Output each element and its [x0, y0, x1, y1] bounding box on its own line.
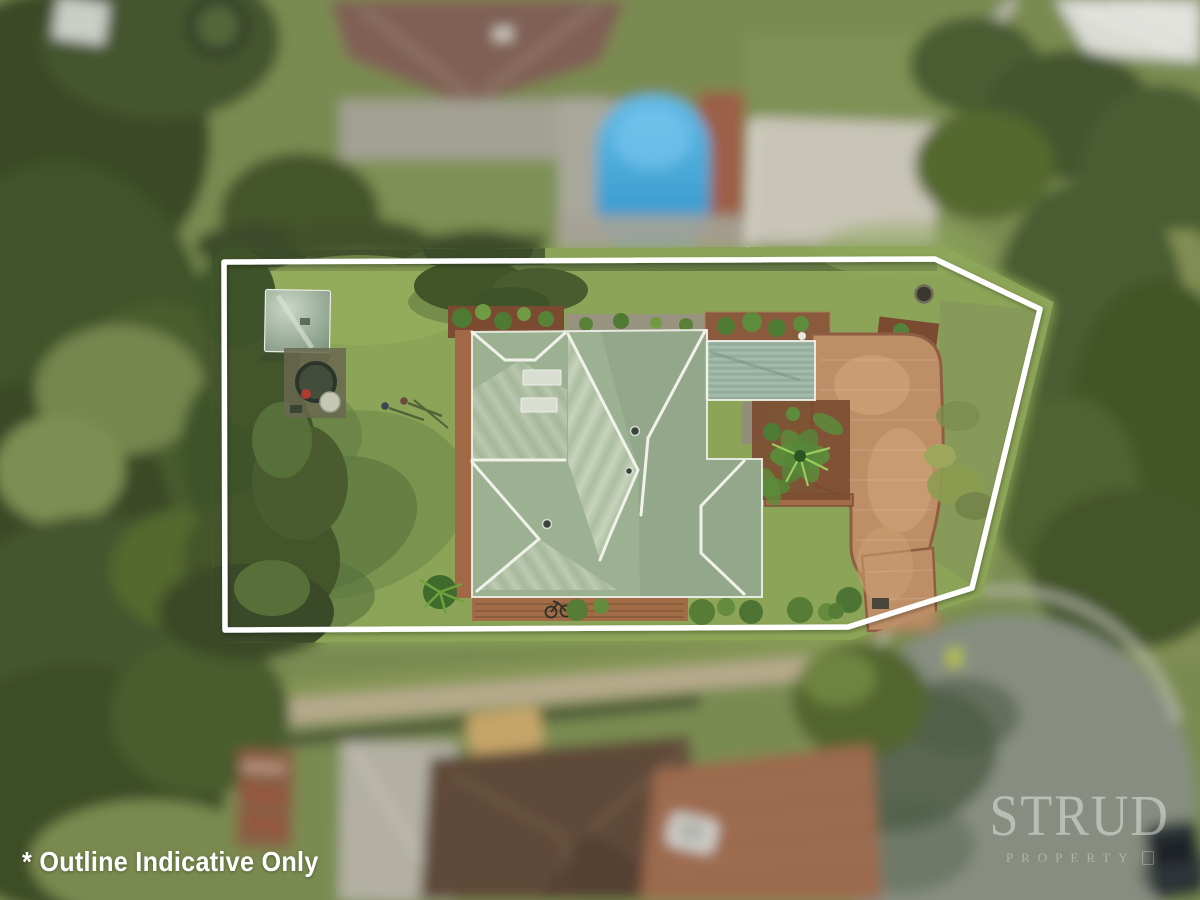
aerial-property-photo: * Outline Indicative Only STRUD PROPERTY [0, 0, 1200, 900]
watermark-logo-icon [1142, 851, 1154, 865]
watermark-brand: STRUD [990, 788, 1170, 846]
agency-watermark: STRUD PROPERTY [990, 788, 1170, 866]
aerial-scene-svg [0, 0, 1200, 900]
outline-disclaimer-text: * Outline Indicative Only [22, 846, 319, 878]
watermark-tagline: PROPERTY [1006, 851, 1136, 864]
